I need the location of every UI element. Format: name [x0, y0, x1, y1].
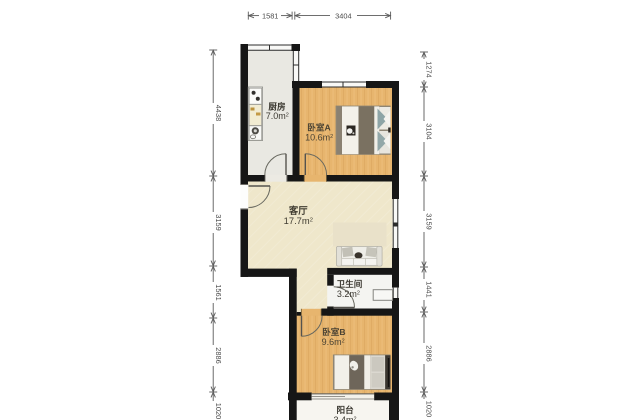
svg-text:9.6m2: 9.6m2	[322, 337, 345, 347]
svg-text:10.6m2: 10.6m2	[305, 133, 333, 143]
svg-text:卧室A: 卧室A	[307, 122, 330, 133]
svg-text:3104: 3104	[425, 123, 434, 139]
svg-text:3159: 3159	[425, 213, 434, 229]
svg-text:17.7m2: 17.7m2	[284, 215, 313, 226]
svg-text:3.2m2: 3.2m2	[337, 289, 360, 299]
svg-text:1020: 1020	[425, 401, 434, 417]
svg-text:卫生间: 卫生间	[337, 278, 363, 289]
svg-text:2886: 2886	[214, 347, 223, 363]
svg-text:1020: 1020	[214, 403, 223, 419]
svg-text:4438: 4438	[214, 105, 223, 121]
svg-text:厨房: 厨房	[268, 101, 286, 112]
svg-text:3.4m2: 3.4m2	[333, 415, 356, 420]
svg-text:1581: 1581	[262, 11, 278, 20]
svg-text:1274: 1274	[425, 61, 434, 77]
svg-text:阳台: 阳台	[336, 404, 354, 415]
svg-text:2886: 2886	[425, 345, 434, 361]
svg-text:1441: 1441	[425, 281, 434, 297]
svg-text:3159: 3159	[214, 214, 223, 230]
svg-text:3404: 3404	[335, 11, 351, 20]
svg-text:卧室B: 卧室B	[322, 326, 345, 337]
svg-text:1561: 1561	[214, 284, 223, 300]
svg-text:7.0m2: 7.0m2	[266, 111, 289, 121]
